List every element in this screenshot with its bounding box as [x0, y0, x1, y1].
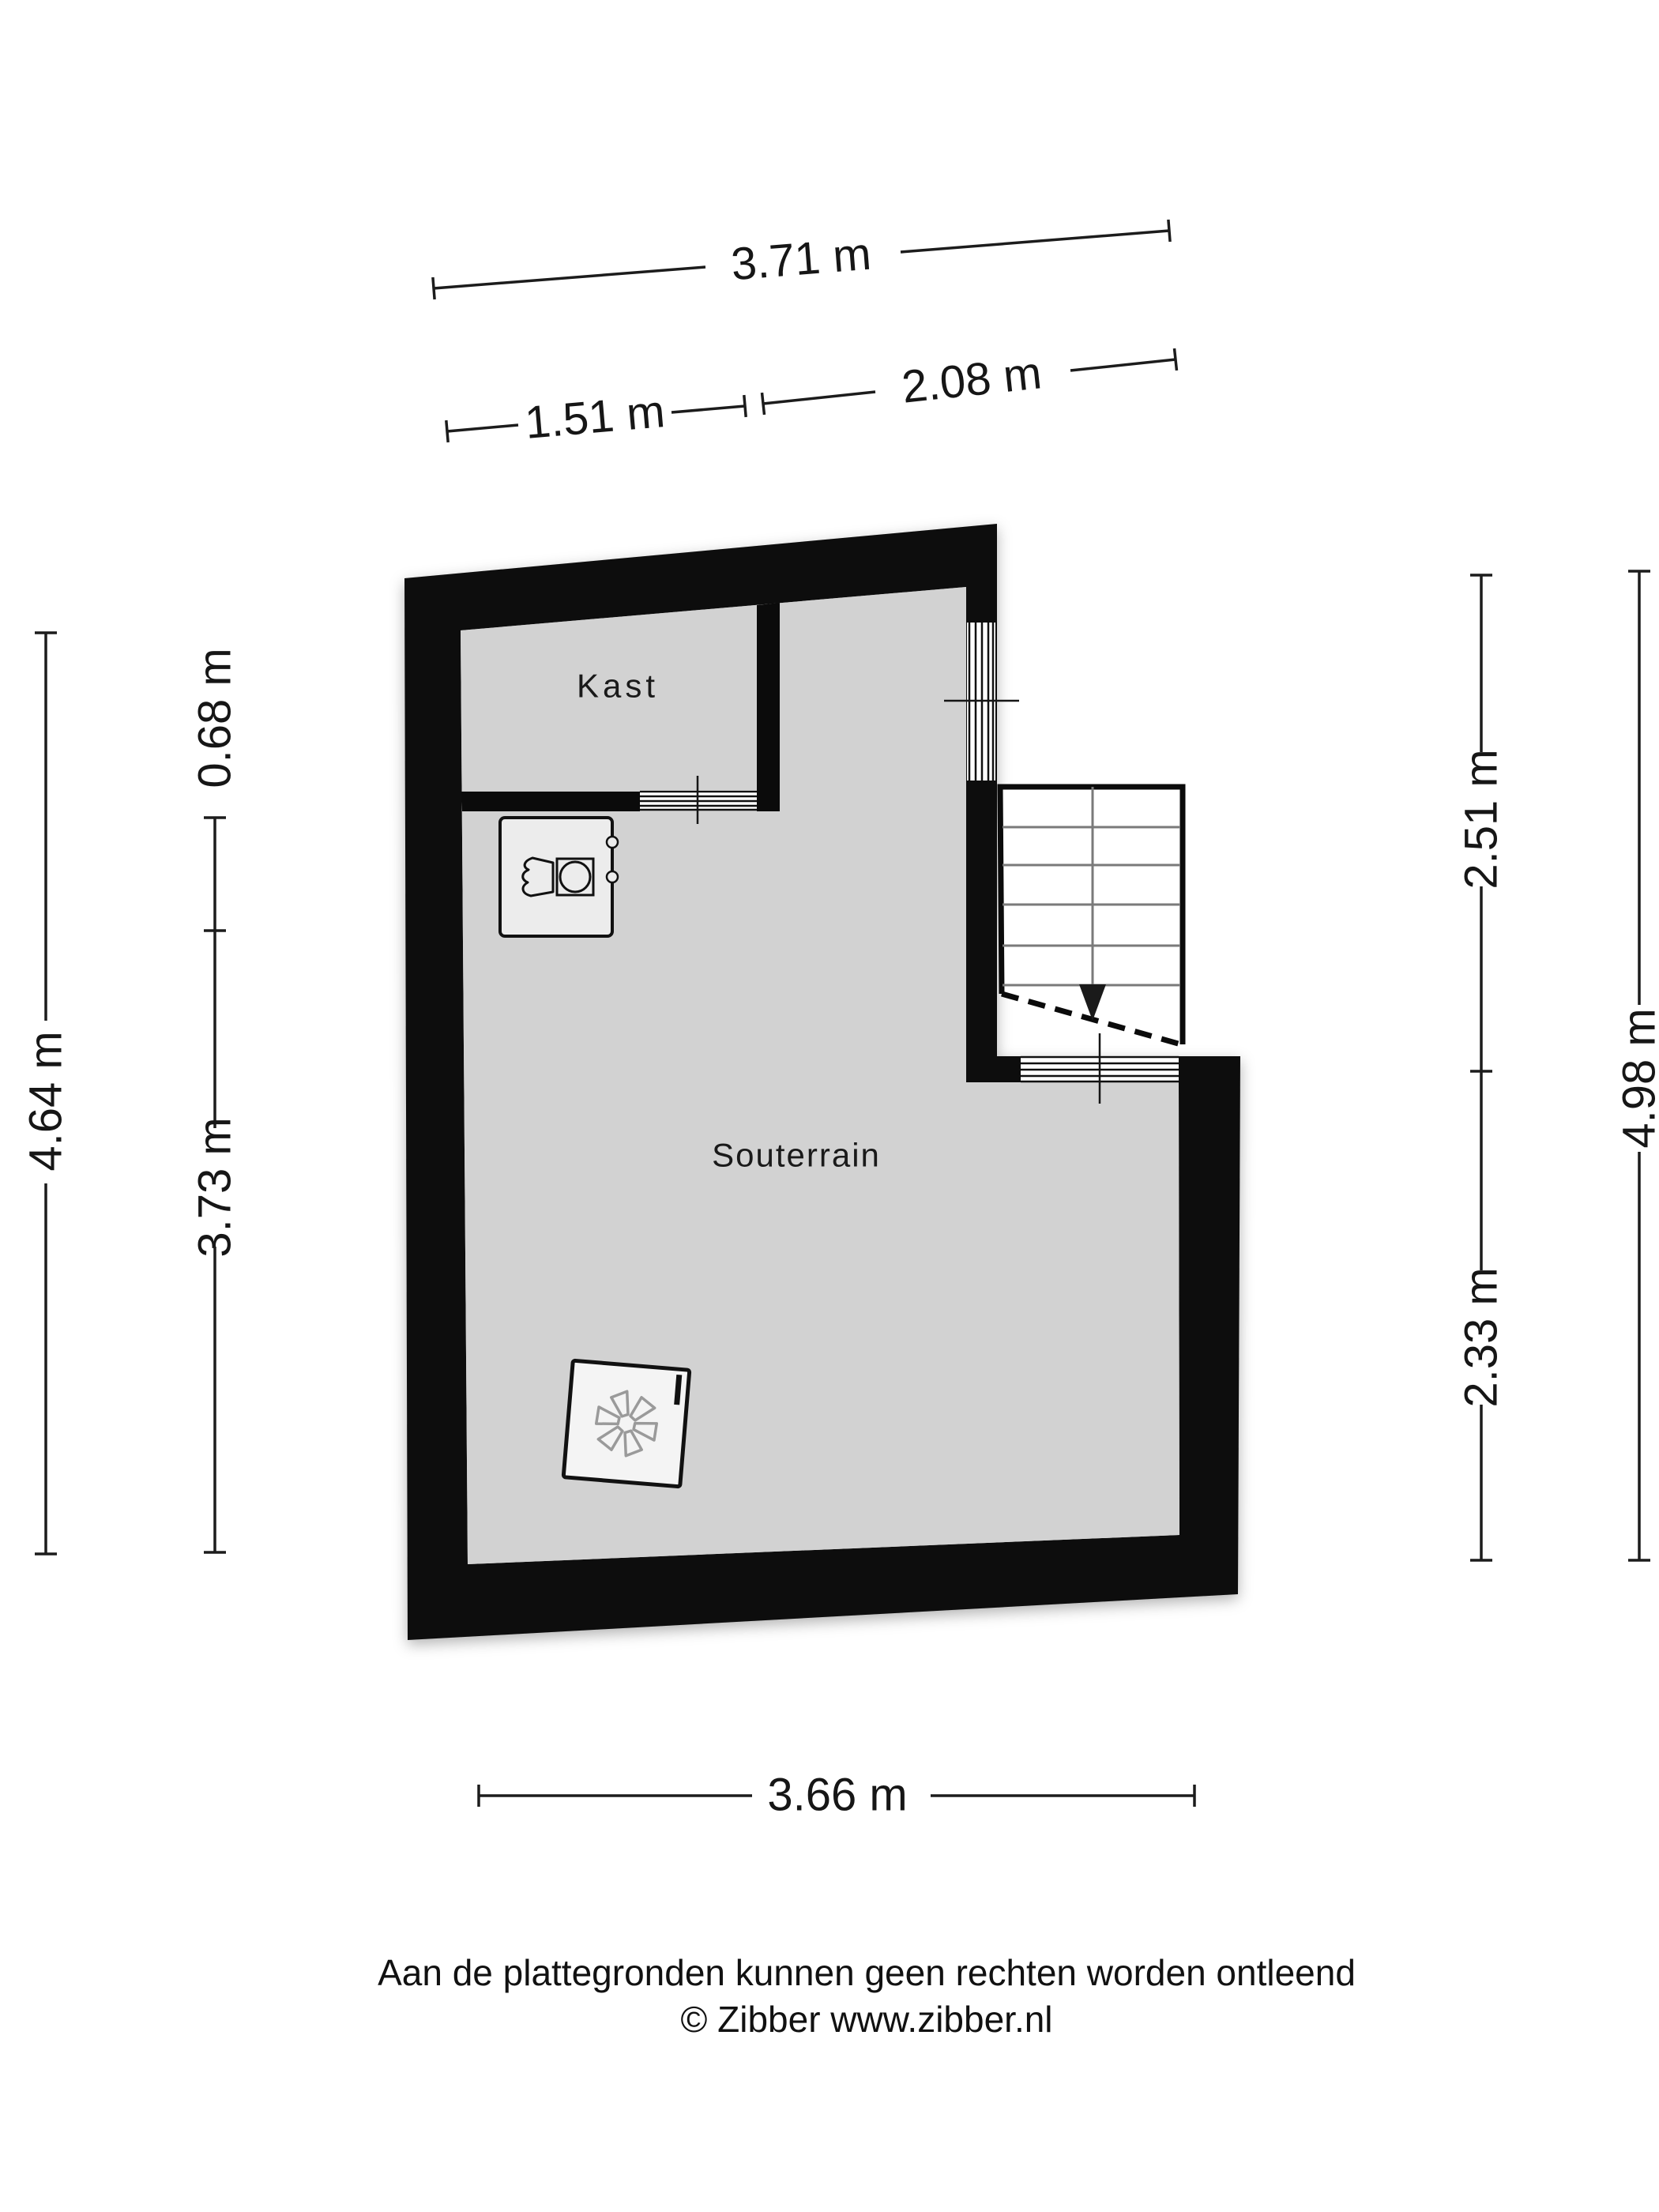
- dimension-label: 2.33 m: [1456, 1267, 1507, 1407]
- dimension-label: 1.51 m: [523, 386, 667, 449]
- building-plan: Kast Souterrain: [404, 524, 1240, 1640]
- floorplan-drawing: Kast Souterrain 3.71 m 1.51 m 2.08 m 4.6…: [0, 0, 1659, 2212]
- dimension-label: 2.51 m: [1456, 749, 1507, 889]
- dimension-left-outer: 4.64 m: [21, 633, 72, 1554]
- dimension-label: 4.64 m: [21, 1031, 72, 1171]
- dimension-label: 4.98 m: [1614, 1008, 1659, 1148]
- floorplan-page: Kast Souterrain 3.71 m 1.51 m 2.08 m 4.6…: [0, 0, 1659, 2212]
- dimension-label: 3.66 m: [767, 1770, 907, 1821]
- kast-partition-wall-horizontal: [461, 792, 640, 811]
- dimension-bottom: 3.66 m: [479, 1770, 1194, 1821]
- washing-machine-icon: [500, 818, 618, 936]
- footer: Aan de plattegronden kunnen geen rechten…: [378, 1952, 1356, 2040]
- dimension-right-inner: 2.51 m 2.33 m: [1456, 575, 1507, 1560]
- staircase: [1000, 787, 1183, 1044]
- dimension-label: 0.68 m: [190, 648, 241, 788]
- room-label-souterrain: Souterrain: [712, 1137, 881, 1174]
- dimension-left-inner: 0.68 m 3.73 m: [190, 648, 241, 1552]
- dimension-label: 3.73 m: [190, 1117, 241, 1257]
- dimension-right-outer: 4.98 m: [1614, 571, 1659, 1560]
- dimension-top-total: 3.71 m: [433, 220, 1170, 299]
- dimension-label: 3.71 m: [729, 228, 873, 291]
- dimension-top-left: 1.51 m: [446, 386, 746, 449]
- disclaimer-text: Aan de plattegronden kunnen geen rechten…: [378, 1952, 1356, 1993]
- room-label-kast: Kast: [577, 668, 659, 705]
- dimension-label: 2.08 m: [899, 347, 1044, 412]
- dimension-top-right: 2.08 m: [762, 347, 1177, 415]
- ventilation-fan-icon: [563, 1360, 690, 1487]
- kast-partition-wall-vertical: [757, 603, 780, 811]
- credit-text: © Zibber www.zibber.nl: [680, 1999, 1052, 2040]
